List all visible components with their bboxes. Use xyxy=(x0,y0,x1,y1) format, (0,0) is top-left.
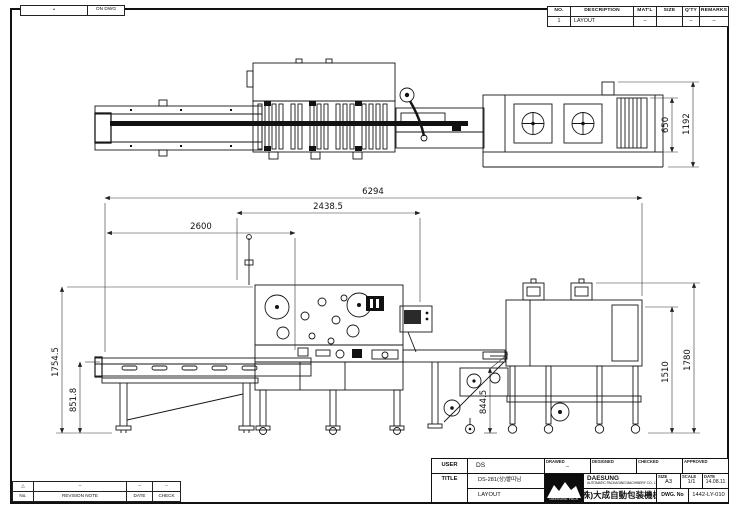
approved-label: APPROVED xyxy=(683,460,708,464)
parts-row-no: 1 xyxy=(547,16,571,27)
drawed-cell: DRAWED – xyxy=(544,458,591,474)
dim-belt-height: 851.8 xyxy=(69,388,79,412)
title-block: USER DS DRAWED – DESIGNED CHECKED APPROV… xyxy=(431,458,729,503)
dwg-no-value: 1442-LY-010 xyxy=(688,488,729,503)
size-value: A3 xyxy=(665,480,672,486)
dim-discharge-height: 844.5 xyxy=(479,390,489,414)
dim-top-width: 650 xyxy=(661,117,671,133)
designed-label: DESIGNED xyxy=(591,460,614,464)
parts-row-size xyxy=(656,16,683,27)
company-subtitle: AUTOMATIC PACKAGING MACHINERY CO., LTD. xyxy=(587,482,657,486)
date-value: 14.08.11 xyxy=(706,480,726,485)
dim-overall-height: 1754.5 xyxy=(51,347,61,377)
checked-cell: CHECKED xyxy=(636,458,683,474)
user-label: USER xyxy=(431,458,468,474)
dim-infeed-length: 2600 xyxy=(190,222,212,232)
title-line1: DS-281(상)빨띠님 xyxy=(467,473,545,489)
drawed-signature: – xyxy=(566,465,569,471)
revision-header-no: No. xyxy=(12,491,34,502)
dim-overall-length: 6294 xyxy=(362,187,384,197)
size-cell: SIZE A3 xyxy=(656,473,681,489)
dim-tunnel-overall-height: 1780 xyxy=(683,349,693,371)
on-dwg-label: ON DWG xyxy=(87,5,125,16)
dwg-no-label: DWG. No xyxy=(656,488,689,503)
daesung-logo: DAESUNG PACK xyxy=(544,473,584,503)
company-cjk-name: (株)大成自動包装機械 xyxy=(583,491,657,500)
parts-row-qty: – xyxy=(682,16,700,27)
machine-layout-drawing: 650 1192 xyxy=(0,0,738,511)
title-label: TITLE xyxy=(431,473,468,503)
front-view xyxy=(95,235,642,435)
revision-header-check: CHECK xyxy=(152,491,181,502)
parts-row-desc: LAYOUT xyxy=(570,16,634,27)
drawing-sheet: 650 1192 xyxy=(0,0,738,511)
user-value: DS xyxy=(467,458,545,474)
parts-row-remarks: – xyxy=(699,16,729,27)
dim-top-overall-width: 1192 xyxy=(682,113,692,135)
designed-cell: DESIGNED xyxy=(590,458,637,474)
on-dwg-mark-cell: • xyxy=(20,5,88,16)
checked-label: CHECKED xyxy=(637,460,659,464)
title-line2: LAYOUT xyxy=(467,488,545,503)
company-cell: DAESUNG AUTOMATIC PACKAGING MACHINERY CO… xyxy=(583,473,657,489)
top-view xyxy=(95,59,663,167)
company-cjk-cell: (株)大成自動包装機械 xyxy=(583,488,657,503)
scale-value: 1/1 xyxy=(687,480,695,486)
dim-tunnel-height: 1510 xyxy=(661,361,671,383)
parts-row-matl: – xyxy=(633,16,657,27)
scale-cell: SCALE 1/1 xyxy=(680,473,703,489)
mountain-logo-icon xyxy=(547,480,581,498)
drawed-label: DRAWED xyxy=(545,460,565,464)
dim-wrapper-length: 2438.5 xyxy=(313,202,343,212)
revision-header-note: REVISION NOTE xyxy=(33,491,127,502)
revision-header-date: DATE xyxy=(126,491,153,502)
date-cell: DATE 14.08.11 xyxy=(702,473,729,489)
film-rollers xyxy=(258,104,387,149)
logo-text: DAESUNG PACK xyxy=(549,498,578,502)
approved-cell: APPROVED xyxy=(682,458,729,474)
